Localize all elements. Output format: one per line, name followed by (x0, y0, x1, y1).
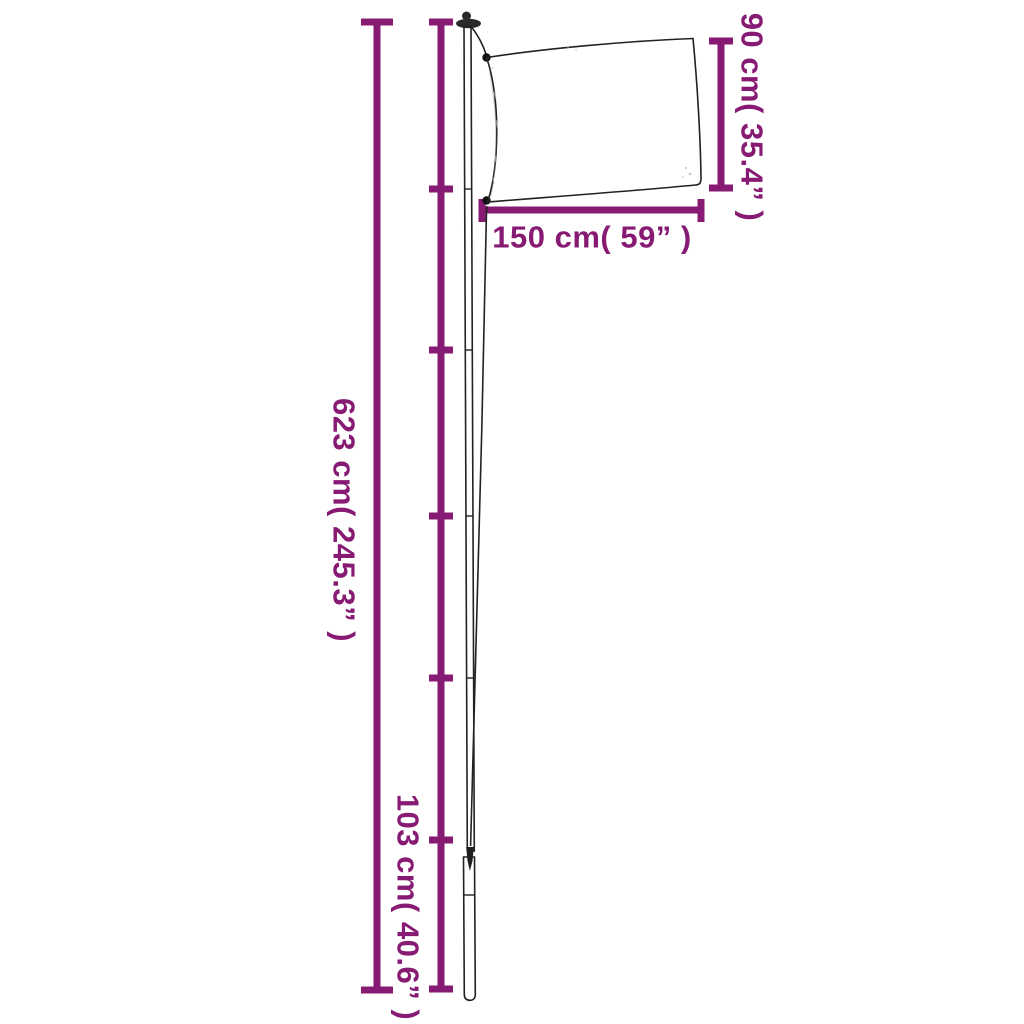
pole-sections-measure-line (429, 22, 453, 989)
flagpole-dimension-diagram: 623 cm( 245.3” ) 103 cm( 40.6” ) 90 cm( … (0, 0, 1024, 1024)
flag-height-measure-line (709, 41, 733, 188)
flag-width-label: 150 cm( 59” ) (492, 222, 692, 253)
flag-cloth (487, 39, 702, 203)
flag-texture-speckles (492, 46, 692, 190)
pole-upper-tube (464, 26, 474, 851)
pole-ground-tube (464, 857, 476, 1000)
flagpole-drawing (0, 0, 1024, 1024)
section-height-label: 103 cm( 40.6” ) (393, 794, 424, 1020)
flag-height-label: 90 cm( 35.4” ) (737, 13, 768, 222)
total-height-measure-line (361, 22, 393, 990)
flag (487, 39, 702, 203)
halyard-rope (471, 27, 491, 846)
finial-cap (456, 19, 481, 29)
flagpole (456, 12, 481, 1001)
pole-insert-tip (466, 847, 474, 871)
total-height-label: 623 cm( 245.3” ) (329, 398, 360, 642)
